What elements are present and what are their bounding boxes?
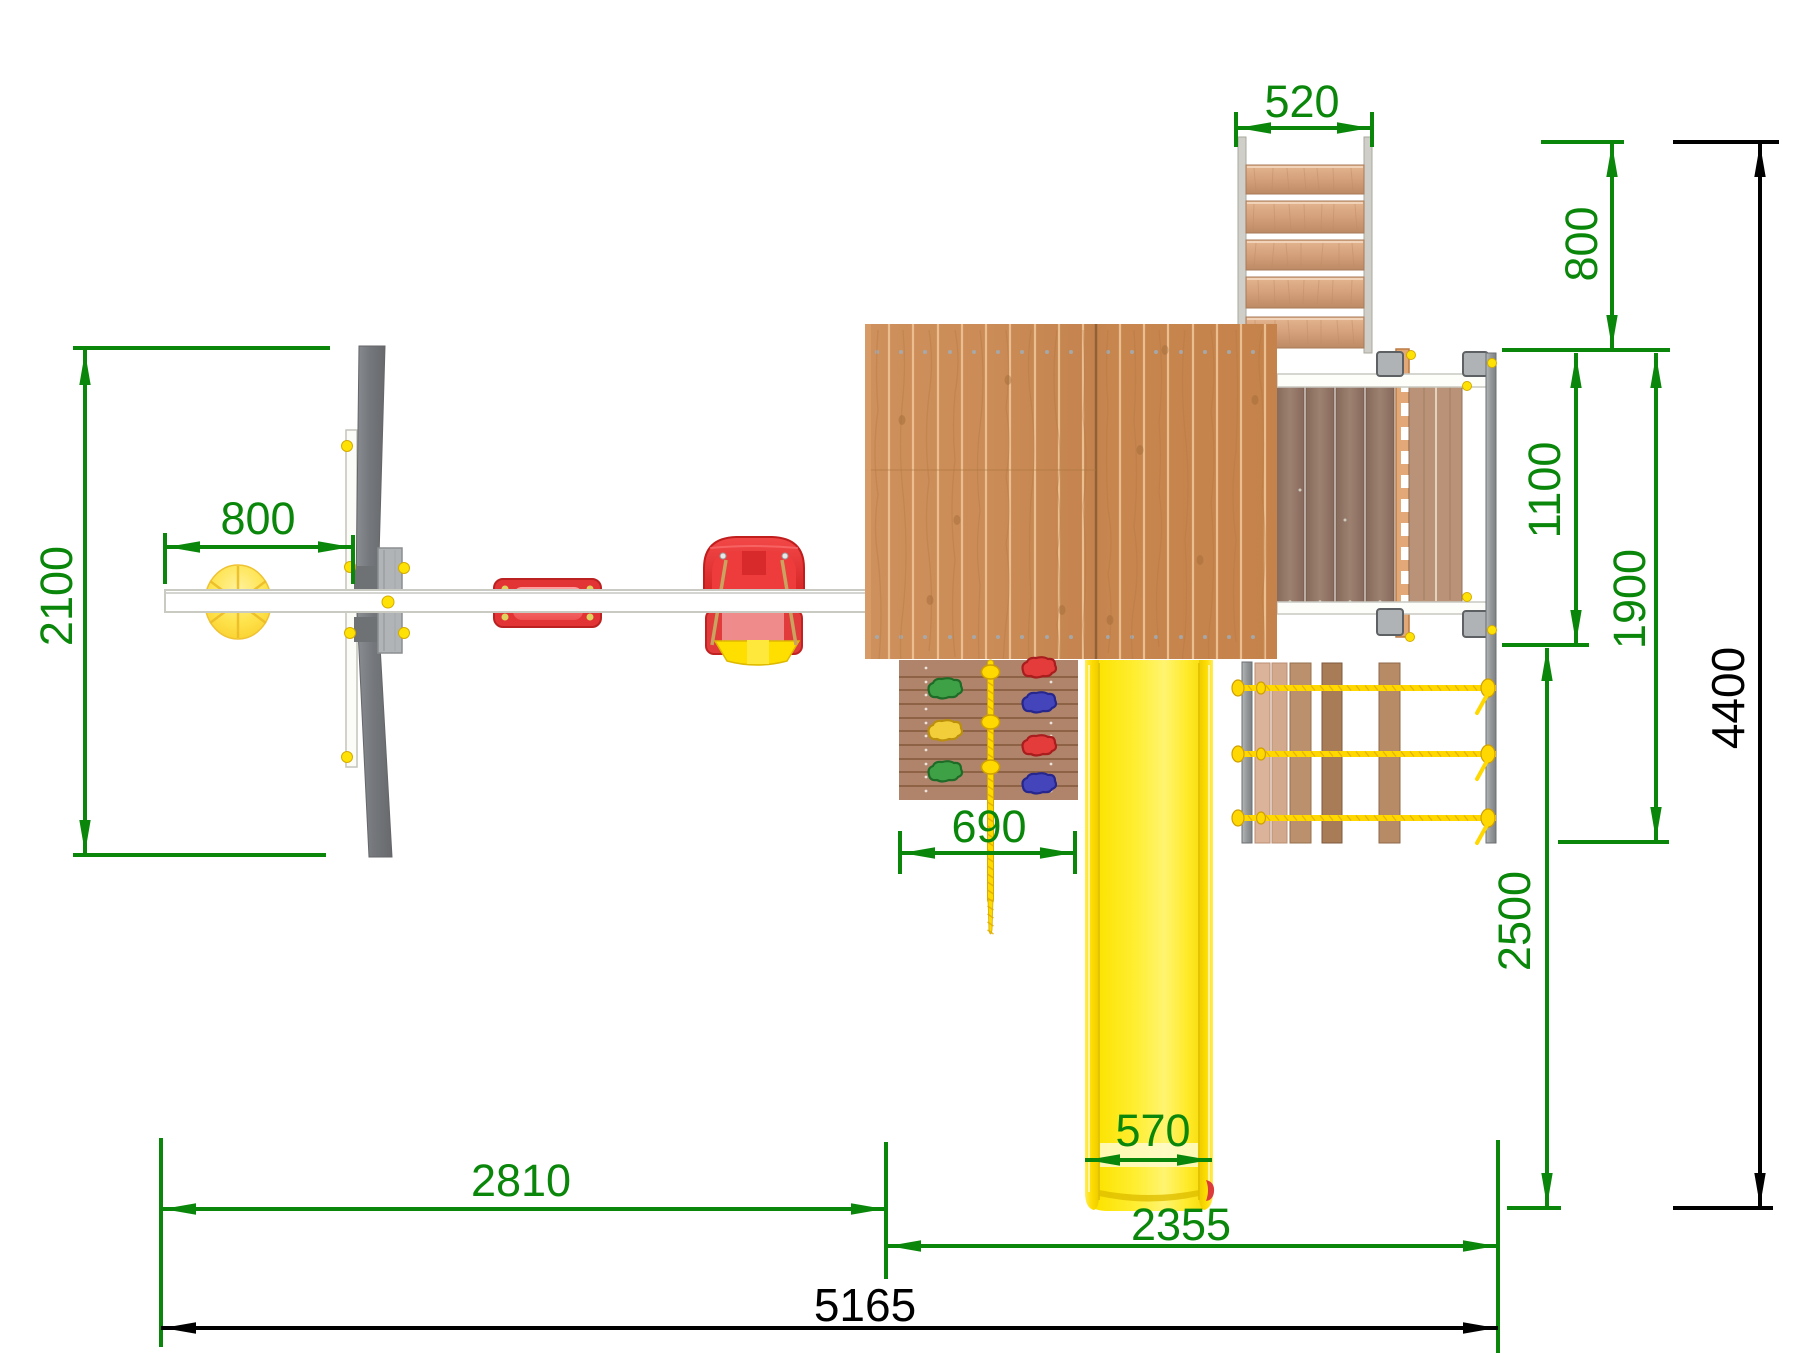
svg-text:1100: 1100 [1519, 442, 1570, 539]
svg-text:2810: 2810 [471, 1155, 571, 1206]
svg-text:2355: 2355 [1131, 1199, 1231, 1250]
svg-text:800: 800 [1556, 206, 1607, 281]
svg-text:4400: 4400 [1702, 647, 1754, 749]
svg-text:5165: 5165 [814, 1279, 916, 1331]
svg-text:690: 690 [951, 801, 1026, 852]
svg-text:2100: 2100 [31, 546, 82, 646]
svg-text:570: 570 [1115, 1105, 1190, 1156]
svg-text:2500: 2500 [1489, 871, 1540, 971]
svg-text:520: 520 [1264, 76, 1339, 127]
svg-text:800: 800 [220, 493, 295, 544]
svg-text:1900: 1900 [1604, 549, 1655, 649]
